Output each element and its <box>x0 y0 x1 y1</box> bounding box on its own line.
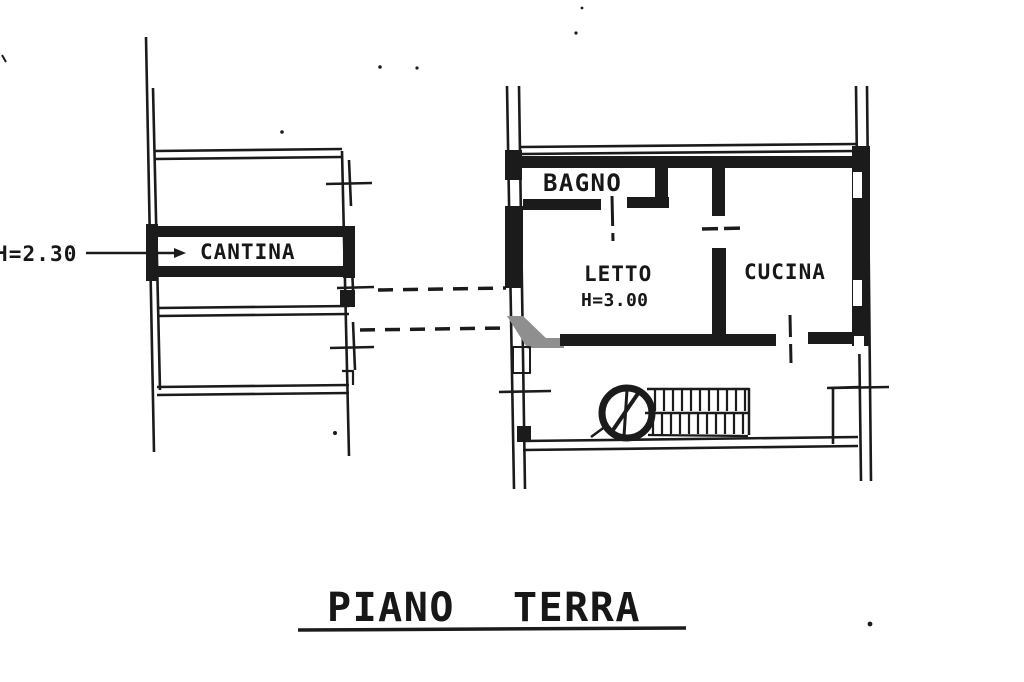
gray-wall-segment <box>526 338 564 348</box>
title-word-1: PIANO <box>327 585 455 631</box>
title-underline <box>298 628 686 630</box>
left-wing: CANTINA <box>146 37 374 456</box>
title-block: PIANO TERRA <box>298 585 686 631</box>
cucina-label: CUCINA <box>744 260 826 284</box>
bagno-label: BAGNO <box>543 169 622 197</box>
window-pocket <box>854 336 864 354</box>
stair-treads-lower <box>653 414 743 434</box>
title-word-2: TERRA <box>513 585 641 631</box>
vestibule-door-leaf <box>702 228 744 229</box>
cantina-top-wall <box>155 226 353 237</box>
staircase <box>591 388 749 438</box>
cantina-bottom-wall <box>155 266 352 277</box>
stair-treads-upper <box>655 390 745 411</box>
cantina-label: CANTINA <box>200 240 296 264</box>
cantina-height-label: H=2.30 <box>0 242 77 266</box>
letto-label: LETTO <box>584 262 652 286</box>
scan-specks <box>2 7 872 627</box>
window-pocket <box>853 280 862 306</box>
rooms-bottom-wall <box>507 315 854 363</box>
leader-arrowhead-icon <box>174 248 186 258</box>
top-bearing-wall <box>521 156 857 168</box>
dashed-connectors <box>360 288 506 330</box>
cucina-partition <box>702 166 744 339</box>
letto-height-label: H=3.00 <box>581 290 648 311</box>
cucina-door-leaf <box>790 315 791 363</box>
main-wing: BAGNO LETTO H=3.00 CUCINA <box>499 86 889 489</box>
exterior-step <box>513 347 530 373</box>
window-pocket <box>853 172 862 198</box>
scanned-floor-plan-page: CANTINA H=2.30 <box>0 0 1024 682</box>
bagno-door-leaf <box>612 196 613 241</box>
floor-plan-drawing: CANTINA H=2.30 <box>0 0 1024 682</box>
